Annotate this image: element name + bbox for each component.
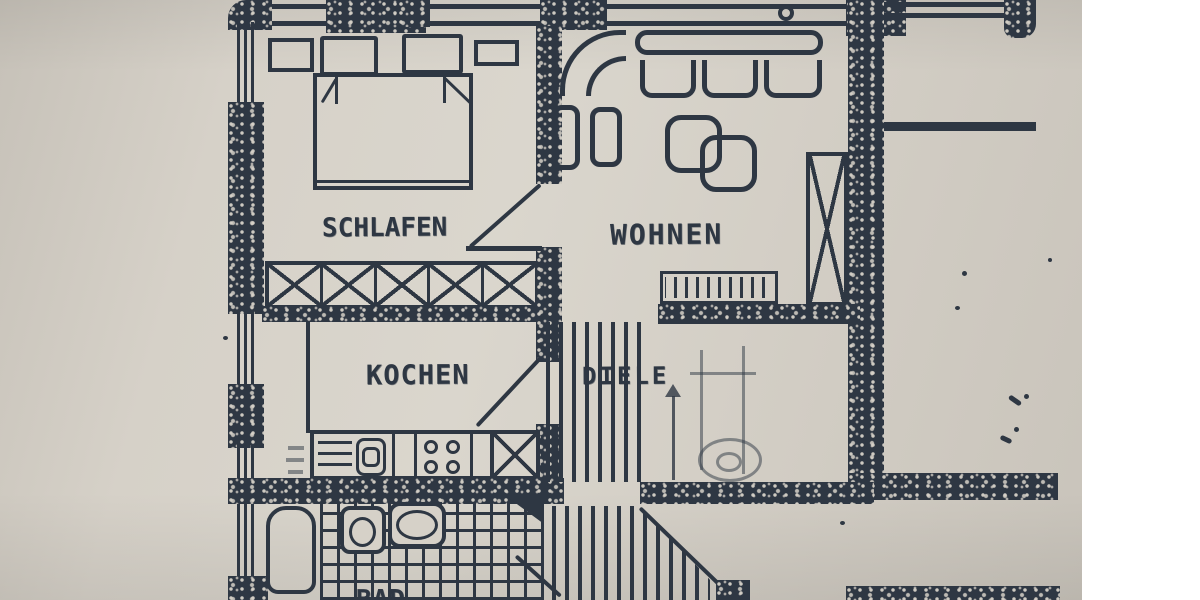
- window-left-upper: [237, 22, 254, 106]
- stove-burner: [446, 440, 460, 454]
- right-wall: [848, 0, 884, 482]
- fridge-x-box: [490, 430, 540, 480]
- radiator: [660, 271, 778, 304]
- drainboard-line: [318, 441, 352, 444]
- scan-speck: [1024, 394, 1029, 399]
- scan-speck: [223, 336, 228, 340]
- wall-kitchen-top: [262, 306, 562, 322]
- balcony-railing-lines: [884, 2, 1008, 18]
- bed-foot-line: [317, 180, 469, 183]
- wardrobe-cell: [269, 265, 323, 305]
- scan-margin: [1082, 0, 1200, 600]
- mattress-left: [320, 36, 378, 76]
- armchair-left: [552, 105, 580, 170]
- door-dash: [288, 470, 303, 474]
- scan-speck: [1014, 427, 1019, 432]
- stair-newel-blob: [716, 580, 750, 600]
- wall-wohnen-diele: [658, 304, 860, 324]
- tall-cabinet-x-box: [806, 152, 848, 306]
- door-dash: [286, 458, 304, 462]
- balcony-edge-line: [884, 122, 1036, 131]
- scan-speck: [1008, 394, 1022, 406]
- scan-speck: [1048, 258, 1052, 262]
- stair-arrow-line: [672, 396, 675, 480]
- wardrobe-cell: [323, 265, 377, 305]
- wardrobe-cell: [484, 265, 535, 305]
- window-marker-icon: [778, 5, 794, 21]
- balcony-railing-end-post: [1004, 0, 1036, 38]
- scan-speck: [962, 271, 967, 276]
- faint-sketch-ellipse: [716, 452, 742, 472]
- bathtub: [266, 506, 316, 594]
- room-label-diele: DIELE: [582, 362, 669, 391]
- kitchen-side-line: [306, 321, 310, 433]
- kitchen-sink-basin: [362, 447, 380, 467]
- counter-divider: [414, 434, 417, 476]
- wardrobe-cell: [430, 265, 484, 305]
- counter-divider: [392, 434, 395, 476]
- scan-speck: [1000, 435, 1013, 445]
- stove-burner: [424, 440, 438, 454]
- sofa-cushion: [764, 60, 822, 98]
- door-swing-kochen: [476, 356, 543, 427]
- floorplan-photo: SCHLAFEN WOHNEN KOCHEN: [0, 0, 1200, 600]
- left-wall-pier: [228, 384, 264, 448]
- wall-bottom-edge: [846, 586, 1060, 600]
- room-label-schlafen: SCHLAFEN: [322, 213, 447, 244]
- top-wall-pier: [398, 0, 430, 27]
- wardrobe-cell: [377, 265, 431, 305]
- room-label-kochen: KOCHEN: [366, 360, 470, 392]
- window-left-middle: [237, 310, 254, 388]
- faint-sketch-line: [690, 372, 756, 375]
- scan-speck: [840, 521, 845, 525]
- door-swing-schlafen: [469, 183, 542, 248]
- nightstand-right: [474, 40, 519, 66]
- sofa-back: [635, 30, 823, 55]
- staircase-upper-flight: [546, 322, 650, 482]
- window-left-lower: [237, 444, 254, 580]
- room-label-wohnen: WOHNEN: [610, 218, 723, 252]
- stove-burner: [446, 460, 460, 474]
- built-in-wardrobe-x-row: [265, 261, 539, 309]
- nightstand-left: [268, 38, 314, 72]
- drainboard-line: [318, 463, 352, 466]
- wall-diele-bottom: [640, 482, 874, 504]
- washbasin-bowl: [396, 510, 438, 540]
- coffee-table-2: [700, 135, 757, 192]
- mattress-right: [402, 34, 463, 74]
- toilet-bowl: [349, 517, 376, 547]
- door-dash: [288, 446, 304, 450]
- sofa-cushion: [702, 60, 758, 98]
- stove-burner: [424, 460, 438, 474]
- left-wall-pier: [228, 102, 264, 314]
- scan-speck: [955, 306, 960, 310]
- room-label-bad: BAD: [356, 585, 406, 600]
- counter-divider: [470, 434, 473, 476]
- door-threshold-schlafen: [466, 246, 542, 251]
- drainboard-line: [318, 452, 352, 455]
- left-wall-pier-bottom: [228, 576, 268, 600]
- wall-bottom-right-horizontal: [848, 473, 1058, 500]
- armchair-right: [590, 107, 622, 167]
- sofa-cushion: [640, 60, 696, 98]
- paper-background: SCHLAFEN WOHNEN KOCHEN: [0, 0, 1082, 600]
